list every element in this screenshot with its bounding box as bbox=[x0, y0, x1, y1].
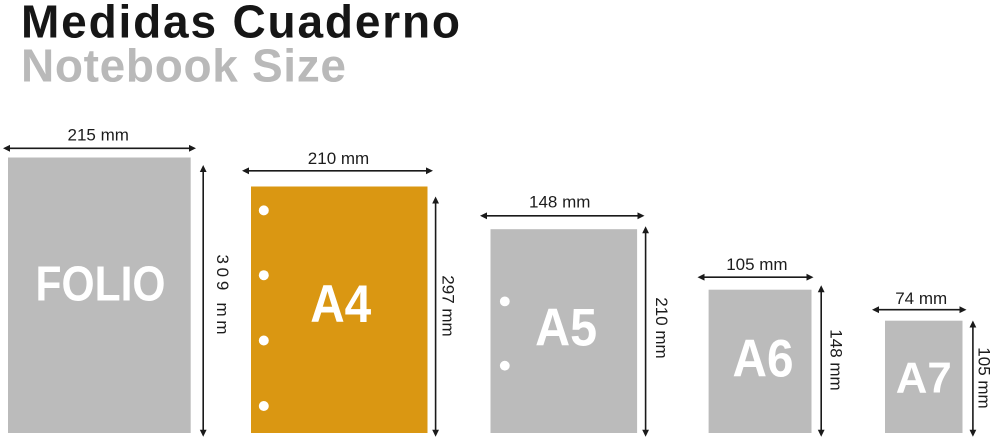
svg-text:105 mm: 105 mm bbox=[975, 347, 994, 408]
svg-text:215 mm: 215 mm bbox=[67, 125, 128, 144]
svg-text:105 mm: 105 mm bbox=[726, 255, 787, 274]
svg-text:Notebook Size: Notebook Size bbox=[21, 40, 346, 92]
svg-text:148 mm: 148 mm bbox=[529, 193, 590, 212]
svg-text:74 mm: 74 mm bbox=[895, 289, 947, 308]
svg-text:A7: A7 bbox=[896, 354, 952, 403]
svg-text:297 mm: 297 mm bbox=[439, 275, 458, 336]
svg-text:FOLIO: FOLIO bbox=[36, 257, 166, 312]
svg-text:A6: A6 bbox=[733, 329, 794, 388]
svg-text:A4: A4 bbox=[310, 275, 371, 334]
svg-text:148 mm: 148 mm bbox=[827, 329, 846, 390]
svg-text:210 mm: 210 mm bbox=[308, 149, 369, 168]
svg-text:210 mm: 210 mm bbox=[652, 297, 671, 358]
svg-text:A5: A5 bbox=[535, 299, 597, 358]
